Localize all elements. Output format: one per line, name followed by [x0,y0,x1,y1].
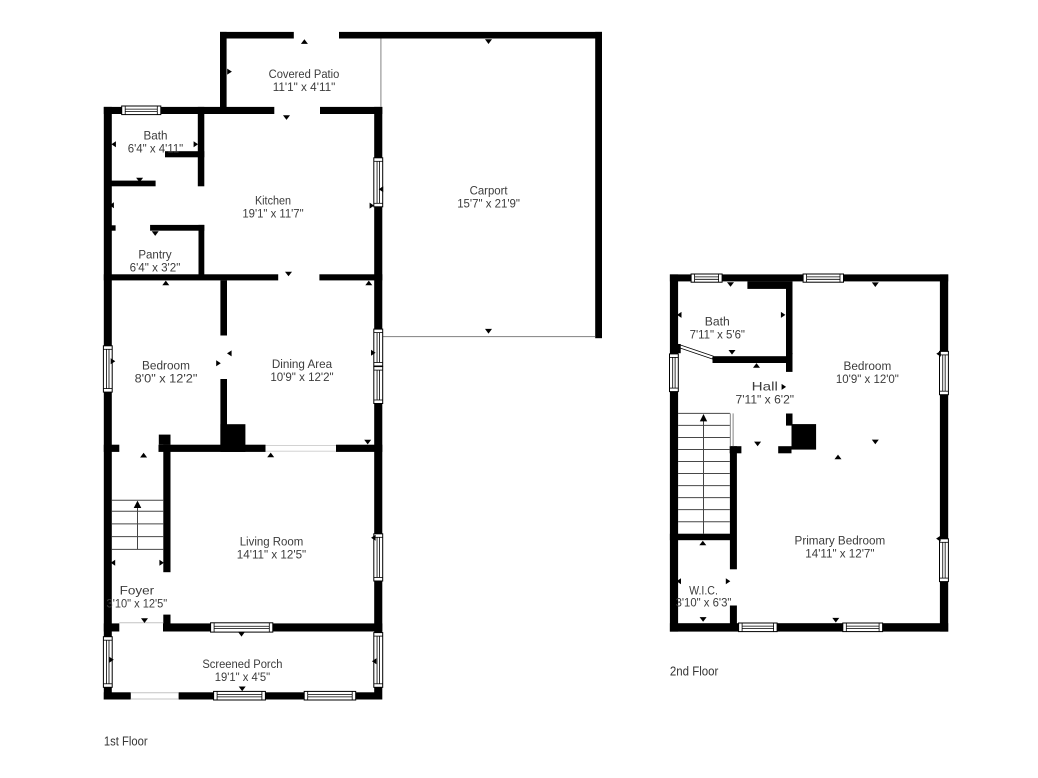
svg-text:8'0" x 12'2": 8'0" x 12'2" [135,372,198,386]
svg-text:19'1" x 4'5": 19'1" x 4'5" [215,670,270,684]
svg-text:Hall: Hall [752,379,778,393]
svg-text:7'11" x 5'6": 7'11" x 5'6" [690,327,745,341]
svg-text:10'9" x 12'0": 10'9" x 12'0" [836,372,899,386]
svg-text:2nd Floor: 2nd Floor [670,664,719,678]
svg-text:Bath: Bath [144,128,168,142]
svg-text:3'10" x 6'3": 3'10" x 6'3" [676,596,732,610]
svg-text:Foyer: Foyer [120,584,155,598]
svg-text:14'11" x 12'7": 14'11" x 12'7" [805,547,874,561]
svg-text:10'9" x 12'2": 10'9" x 12'2" [270,370,333,384]
svg-text:6'4" x 3'2": 6'4" x 3'2" [130,261,181,275]
svg-text:14'11" x 12'5": 14'11" x 12'5" [237,548,306,562]
svg-text:7'11" x 6'2": 7'11" x 6'2" [736,392,795,406]
svg-text:1st Floor: 1st Floor [104,735,148,749]
svg-text:Primary Bedroom: Primary Bedroom [795,534,886,548]
svg-text:Pantry: Pantry [138,248,172,262]
svg-text:Bedroom: Bedroom [844,359,892,373]
svg-text:Kitchen: Kitchen [255,194,291,208]
svg-text:11'1" x 4'11": 11'1" x 4'11" [273,80,336,94]
svg-text:Bedroom: Bedroom [142,359,190,373]
svg-text:Carport: Carport [470,184,509,198]
svg-text:15'7" x 21'9": 15'7" x 21'9" [457,197,520,211]
svg-text:6'4" x 4'11": 6'4" x 4'11" [128,141,184,155]
svg-text:Screened Porch: Screened Porch [202,657,282,671]
svg-text:Living Room: Living Room [240,535,304,549]
svg-text:Bath: Bath [705,314,730,328]
svg-text:19'1" x 11'7": 19'1" x 11'7" [242,207,303,221]
svg-text:3'10" x 12'5": 3'10" x 12'5" [107,597,168,611]
svg-text:Dining Area: Dining Area [272,357,332,371]
